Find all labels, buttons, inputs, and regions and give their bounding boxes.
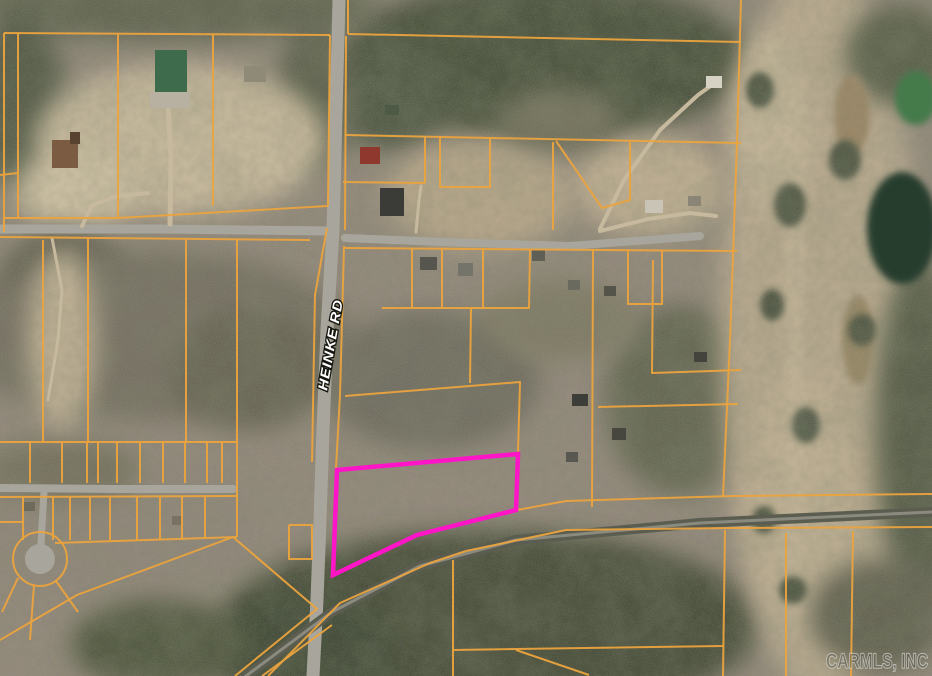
- watermark: CARMLS, INC: [826, 650, 928, 673]
- aerial-map-canvas[interactable]: HEINKE RD CARMLS, INC: [0, 0, 932, 676]
- photo-grain-texture: [0, 0, 932, 676]
- map-viewport[interactable]: HEINKE RD CARMLS, INC: [0, 0, 932, 676]
